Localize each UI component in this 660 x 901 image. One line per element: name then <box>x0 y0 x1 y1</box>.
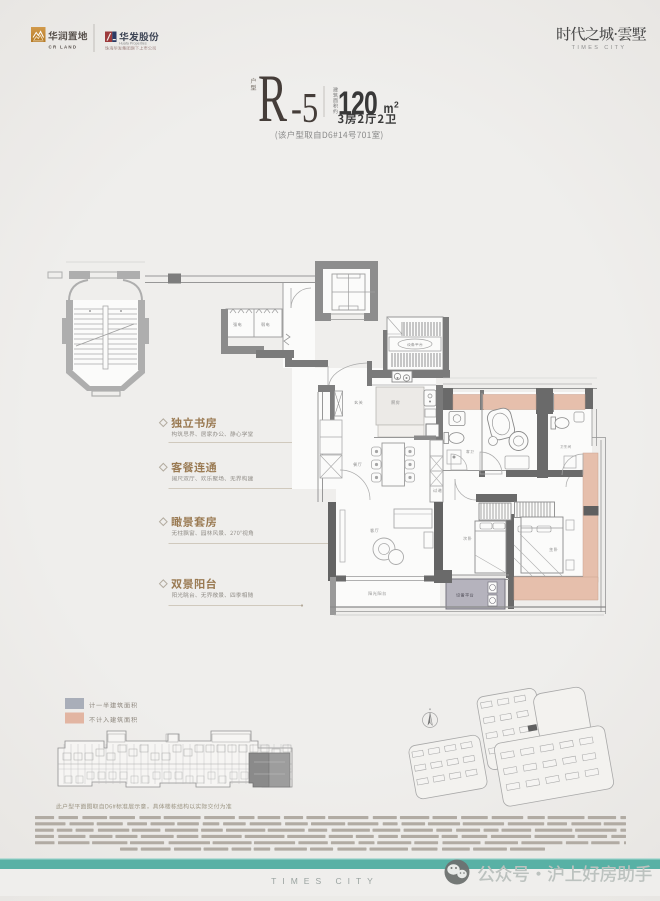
svg-text:R: R <box>258 61 287 136</box>
svg-text:2: 2 <box>394 100 399 110</box>
svg-text:TIMES CITY: TIMES CITY <box>271 876 379 886</box>
svg-text:CR LAND: CR LAND <box>49 44 78 49</box>
svg-text:-5: -5 <box>291 85 318 132</box>
svg-text:m: m <box>384 101 394 116</box>
svg-text:Huafa Properties: Huafa Properties <box>119 42 147 46</box>
svg-text:TIMES CITY: TIMES CITY <box>572 45 627 51</box>
